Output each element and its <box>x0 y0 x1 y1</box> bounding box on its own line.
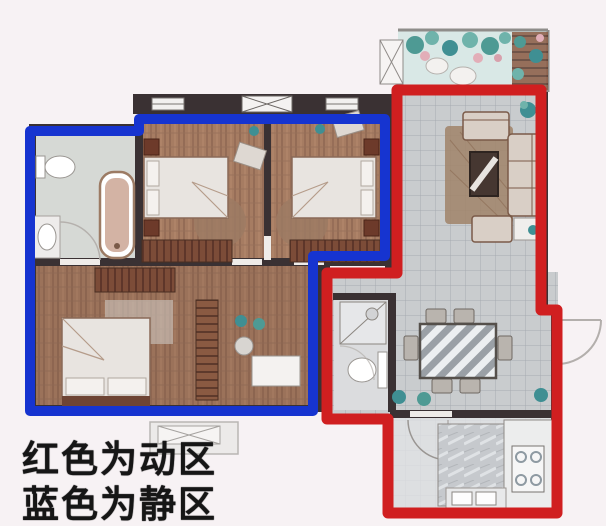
nightstand <box>144 220 159 236</box>
floor-plan-page: 红色为动区 蓝色为静区 <box>0 0 606 526</box>
plant-icon <box>253 318 265 330</box>
legend: 红色为动区 蓝色为静区 <box>22 438 217 526</box>
sink-icon <box>452 492 472 505</box>
nightstand <box>364 139 379 155</box>
nightstand <box>364 220 379 236</box>
sink-icon <box>476 492 496 505</box>
plant-icon <box>315 124 325 134</box>
toilet-tank <box>378 352 387 388</box>
loveseat-icon <box>472 216 512 242</box>
bookshelf-icon <box>196 300 218 400</box>
armchair-icon <box>463 112 509 140</box>
toilet-icon <box>348 358 376 382</box>
plant-icon <box>534 388 548 402</box>
entry-door-arc <box>557 320 601 364</box>
plant-icon <box>249 126 259 136</box>
plant-icon <box>417 392 431 406</box>
top-windows <box>152 96 358 112</box>
desk-icon <box>252 356 300 386</box>
legend-line-dynamic: 红色为动区 <box>22 438 217 481</box>
plant-icon <box>235 315 247 327</box>
legend-line-static: 蓝色为静区 <box>22 483 217 526</box>
dining-table-icon <box>420 324 496 378</box>
entry-door <box>557 320 601 364</box>
bedrooms-divider-wall <box>264 112 271 240</box>
headboard <box>62 396 150 406</box>
wardrobe-icon <box>142 240 232 262</box>
toilet-icon <box>45 156 75 178</box>
plant-icon <box>392 390 406 404</box>
wardrobe-icon <box>95 268 175 292</box>
sofa-icon <box>508 134 540 216</box>
toilet-tank <box>36 156 45 178</box>
nightstand <box>144 139 159 155</box>
desk-chair <box>235 337 253 355</box>
